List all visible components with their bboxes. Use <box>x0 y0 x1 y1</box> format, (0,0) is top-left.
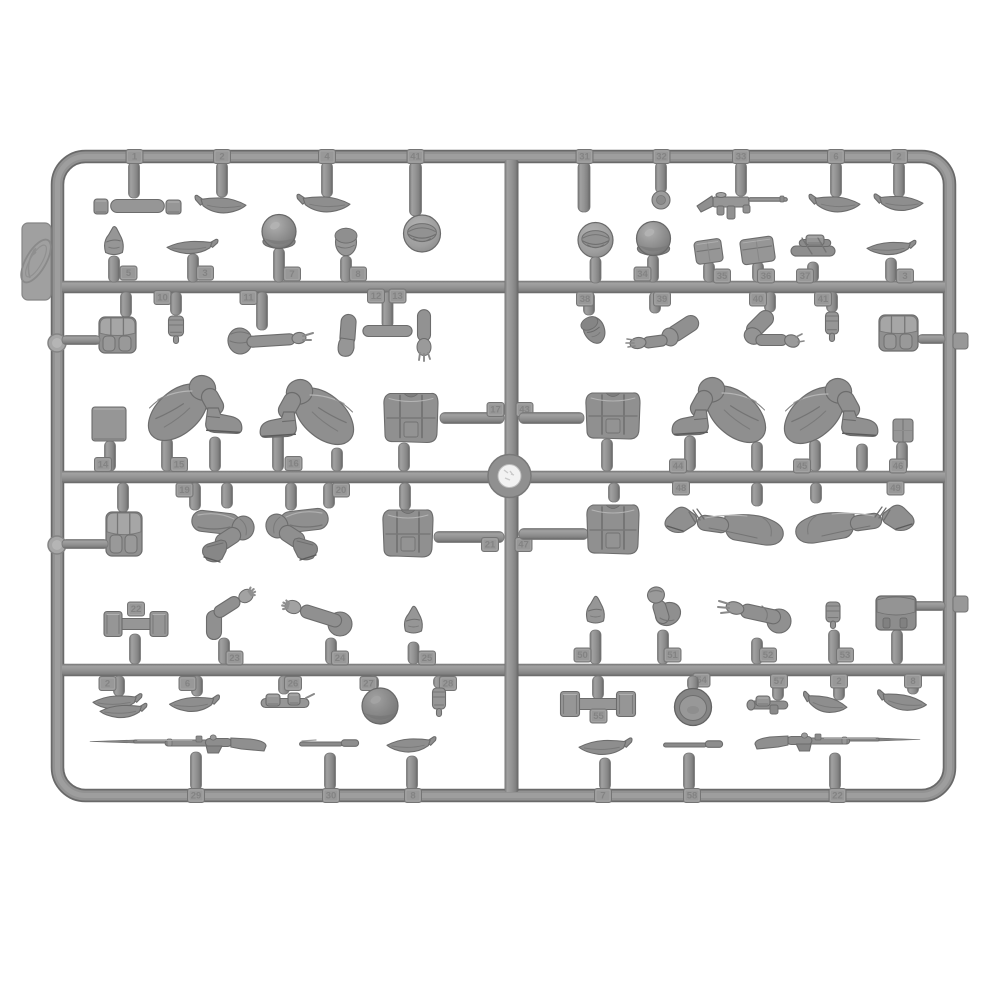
svg-text:52: 52 <box>763 650 774 661</box>
svg-text:13: 13 <box>392 291 403 302</box>
svg-text:2: 2 <box>219 152 224 163</box>
svg-text:7: 7 <box>289 269 294 280</box>
svg-text:33: 33 <box>736 152 747 163</box>
svg-text:8: 8 <box>410 791 415 802</box>
svg-text:44: 44 <box>673 461 684 472</box>
svg-text:25: 25 <box>422 653 433 664</box>
svg-text:37: 37 <box>800 271 811 282</box>
svg-text:20: 20 <box>336 485 347 496</box>
svg-text:58: 58 <box>687 791 698 802</box>
svg-text:8: 8 <box>910 676 915 687</box>
svg-text:17: 17 <box>490 405 501 416</box>
svg-text:34: 34 <box>637 269 648 280</box>
svg-text:8: 8 <box>355 269 360 280</box>
svg-text:5: 5 <box>126 268 132 279</box>
svg-text:10: 10 <box>157 293 168 304</box>
svg-text:6: 6 <box>833 152 838 163</box>
svg-text:27: 27 <box>363 679 374 690</box>
svg-text:15: 15 <box>174 460 185 471</box>
svg-text:38: 38 <box>580 294 591 305</box>
svg-text:12: 12 <box>371 291 382 302</box>
svg-text:6: 6 <box>185 679 190 690</box>
svg-text:48: 48 <box>676 483 687 494</box>
svg-text:47: 47 <box>518 540 529 551</box>
svg-text:2: 2 <box>105 679 110 690</box>
svg-text:22: 22 <box>131 604 142 615</box>
svg-text:28: 28 <box>443 679 454 690</box>
svg-text:2: 2 <box>836 676 841 687</box>
svg-text:1: 1 <box>132 152 138 163</box>
svg-text:55: 55 <box>593 711 604 722</box>
svg-text:3: 3 <box>902 271 907 282</box>
svg-text:4: 4 <box>324 152 330 163</box>
svg-text:51: 51 <box>667 650 678 661</box>
svg-text:32: 32 <box>656 152 667 163</box>
svg-text:14: 14 <box>98 460 109 471</box>
svg-text:57: 57 <box>774 676 785 687</box>
svg-text:29: 29 <box>191 791 202 802</box>
svg-text:16: 16 <box>288 459 299 470</box>
svg-text:3: 3 <box>202 268 207 279</box>
svg-text:19: 19 <box>179 485 190 496</box>
svg-text:23: 23 <box>229 653 240 664</box>
svg-text:40: 40 <box>753 294 764 305</box>
svg-text:49: 49 <box>890 483 901 494</box>
svg-text:41: 41 <box>410 152 421 163</box>
svg-text:11: 11 <box>243 293 254 304</box>
svg-text:7: 7 <box>600 791 605 802</box>
svg-text:35: 35 <box>717 271 728 282</box>
svg-text:36: 36 <box>761 271 772 282</box>
svg-text:53: 53 <box>840 650 851 661</box>
svg-text:41: 41 <box>818 294 829 305</box>
svg-text:21: 21 <box>485 540 496 551</box>
svg-text:2: 2 <box>896 152 901 163</box>
svg-text:24: 24 <box>335 653 346 664</box>
svg-text:50: 50 <box>577 650 588 661</box>
svg-text:26: 26 <box>288 679 299 690</box>
svg-text:22: 22 <box>832 791 843 802</box>
svg-text:31: 31 <box>579 152 590 163</box>
svg-text:46: 46 <box>893 461 904 472</box>
svg-text:30: 30 <box>326 791 337 802</box>
svg-text:45: 45 <box>797 461 808 472</box>
svg-text:39: 39 <box>657 294 668 305</box>
